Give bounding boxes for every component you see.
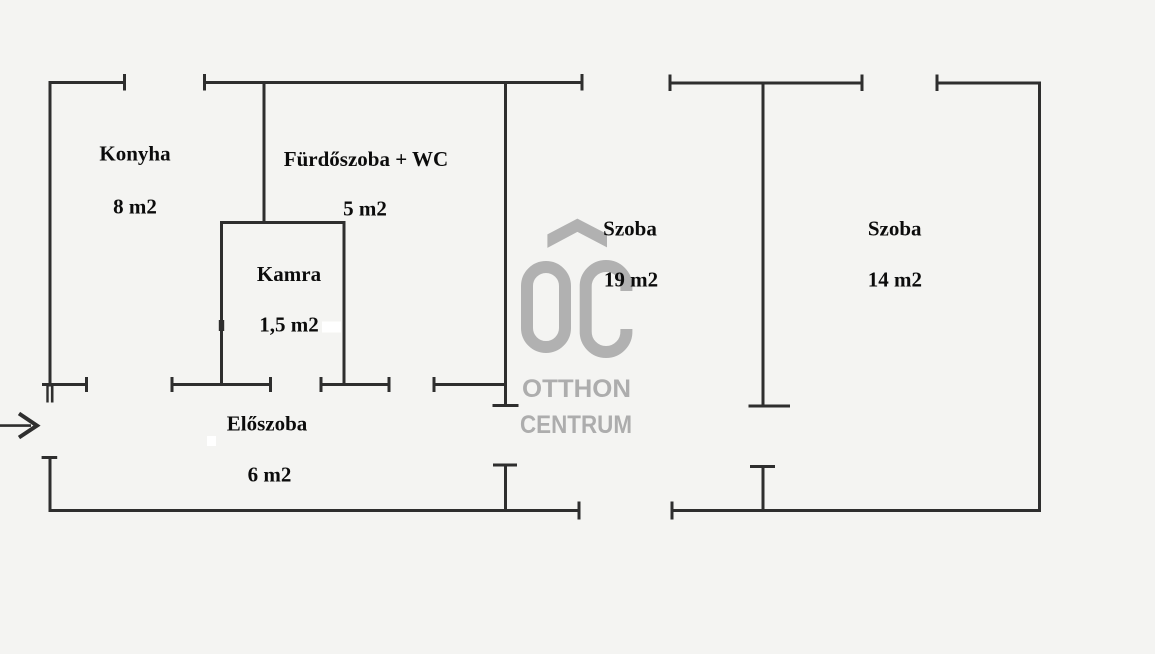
svg-text:Szoba: Szoba <box>603 217 657 241</box>
svg-text:19 m2: 19 m2 <box>604 268 658 292</box>
svg-text:Fürdőszoba + WC: Fürdőszoba + WC <box>284 147 448 171</box>
svg-text:6 m2: 6 m2 <box>248 463 292 487</box>
svg-text:CENTRUM: CENTRUM <box>520 411 632 439</box>
svg-text:Előszoba: Előszoba <box>227 412 308 436</box>
svg-text:14 m2: 14 m2 <box>868 268 922 292</box>
svg-text:8 m2: 8 m2 <box>113 195 157 219</box>
svg-text:Szoba: Szoba <box>868 217 922 241</box>
svg-text:Konyha: Konyha <box>99 142 171 166</box>
svg-text:5 m2: 5 m2 <box>343 197 387 221</box>
svg-text:Kamra: Kamra <box>257 262 322 286</box>
svg-text:1,5 m2: 1,5 m2 <box>259 313 319 337</box>
svg-text:OTTHON: OTTHON <box>522 375 631 403</box>
